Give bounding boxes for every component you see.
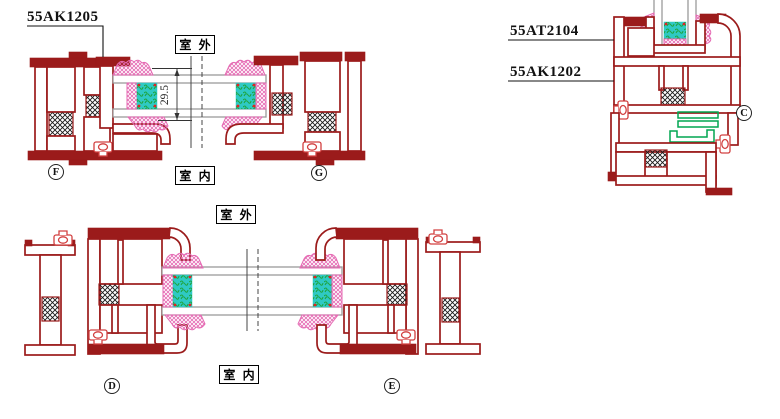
- bottom-horizontal-section: [25, 228, 480, 355]
- zone-box-outdoor-bottom: 室 外: [216, 205, 256, 224]
- zone-box-outdoor-top: 室 外: [175, 35, 215, 54]
- frame-profile-g: [300, 52, 365, 165]
- dimension-label: 29.5: [159, 75, 173, 115]
- zone-box-indoor-bottom: 室 内: [219, 365, 259, 384]
- zone-box-indoor-top: 室 内: [175, 166, 215, 185]
- part-label-55ak1202: 55AK1202: [510, 64, 582, 81]
- section-marker-d: D: [104, 378, 120, 394]
- frame-profile-e: [426, 230, 480, 354]
- part-label-55ak1205: 55AK1205: [27, 9, 99, 26]
- frame-profile-d: [25, 231, 75, 355]
- section-marker-e: E: [384, 378, 400, 394]
- frame-profile-c-bottom: [608, 113, 732, 195]
- glass-spacer: [163, 275, 342, 307]
- glass-spacer: [127, 83, 266, 109]
- break-lines-top: [191, 56, 202, 148]
- section-marker-f: F: [48, 164, 64, 180]
- hardware-green: [670, 112, 718, 142]
- glazing-unit-top: [113, 60, 266, 132]
- break-lines-bottom: [247, 249, 258, 331]
- profile-graphics: [0, 0, 780, 419]
- section-marker-c: C: [736, 105, 752, 121]
- window-section-drawing: 55AK1205 55AT2104 55AK1202 室 外 室 内 室 外 室…: [0, 0, 780, 419]
- right-vertical-section-c: [608, 0, 740, 195]
- part-label-55at2104: 55AT2104: [510, 23, 579, 40]
- section-marker-g: G: [311, 165, 327, 181]
- top-horizontal-section: [28, 52, 365, 165]
- glazing-unit-bottom: [162, 249, 342, 331]
